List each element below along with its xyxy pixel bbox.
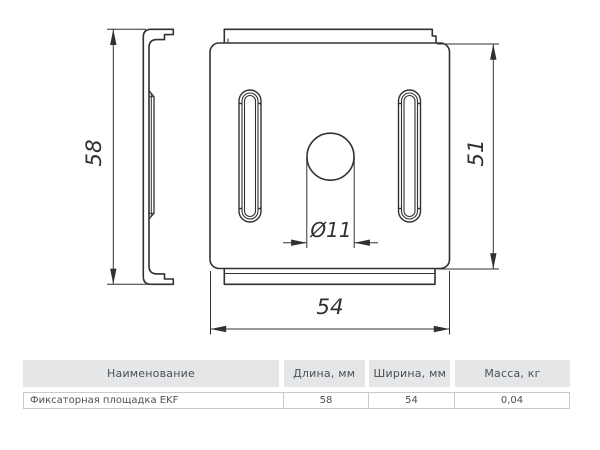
dim-54-label: 54 <box>316 295 343 320</box>
header-width: Ширина, мм <box>369 360 450 387</box>
header-mass: Масса, кг <box>455 360 570 387</box>
right-slot <box>399 90 421 222</box>
dim-58-label: 58 <box>82 139 107 166</box>
side-view <box>143 29 173 284</box>
cell-length: 58 <box>283 393 368 408</box>
cell-mass: 0,04 <box>454 393 569 408</box>
dimension-plate-height: 51 <box>437 44 499 269</box>
technical-drawing: 58 <box>0 0 600 356</box>
dim-51-label: 51 <box>464 139 489 166</box>
left-slot <box>239 90 261 222</box>
dimension-hole-diameter: Ø11 <box>283 157 378 248</box>
front-view <box>210 29 450 284</box>
dimension-plate-width: 54 <box>211 271 450 335</box>
dim-hole-label: Ø11 <box>309 218 351 242</box>
bottom-tab <box>224 269 435 285</box>
top-tab <box>224 29 436 43</box>
cell-width: 54 <box>368 393 454 408</box>
header-name: Наименование <box>23 360 279 387</box>
spec-table: Наименование Длина, мм Ширина, мм Масса,… <box>23 360 570 409</box>
header-length: Длина, мм <box>284 360 365 387</box>
cell-product-name: Фиксаторная площадка EKF <box>24 393 283 408</box>
page: 58 <box>0 0 600 450</box>
spec-table-data-row: Фиксаторная площадка EKF 58 54 0,04 <box>23 392 570 409</box>
center-hole <box>307 133 354 180</box>
spec-table-header-row: Наименование Длина, мм Ширина, мм Масса,… <box>23 360 570 387</box>
